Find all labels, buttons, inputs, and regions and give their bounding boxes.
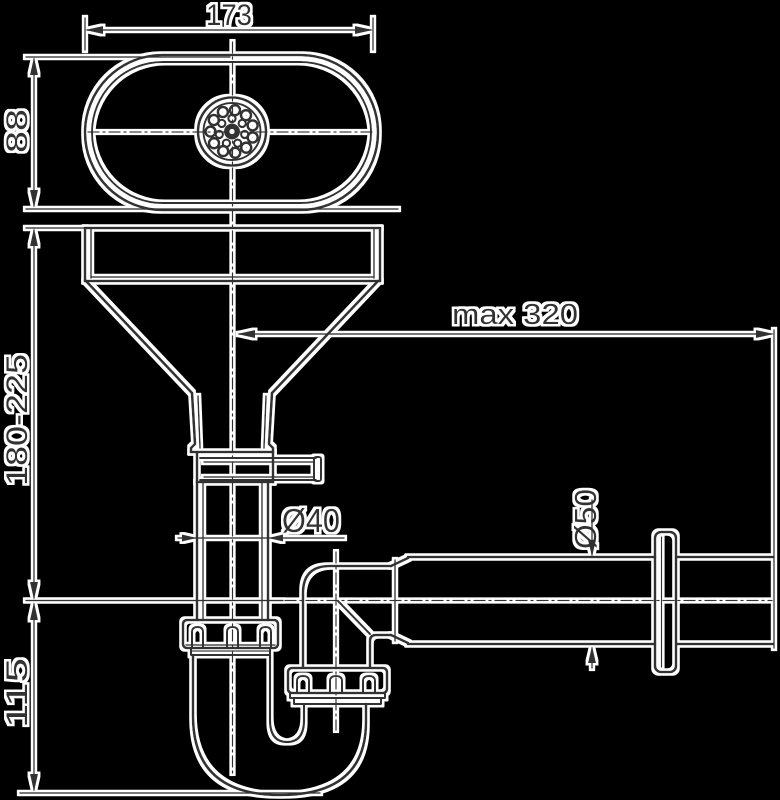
dim-label-max-reach: max 320: [452, 299, 578, 331]
technical-drawing: 173 88 180-225: [0, 0, 780, 800]
background: [0, 0, 780, 800]
drawing-canvas: 173 88 180-225: [0, 0, 780, 800]
dim-label-oval-depth: 88: [1, 109, 34, 153]
dim-label-pipe-diameter-40: Ø40: [282, 502, 340, 539]
dim-label-install-height: 180-225: [1, 354, 34, 486]
dim-label-top-width: 173: [206, 0, 252, 32]
dim-label-pipe-diameter-50: Ø50: [568, 489, 603, 549]
grate-hub-hole: [229, 129, 234, 134]
dim-label-trap-depth: 115: [1, 658, 34, 728]
